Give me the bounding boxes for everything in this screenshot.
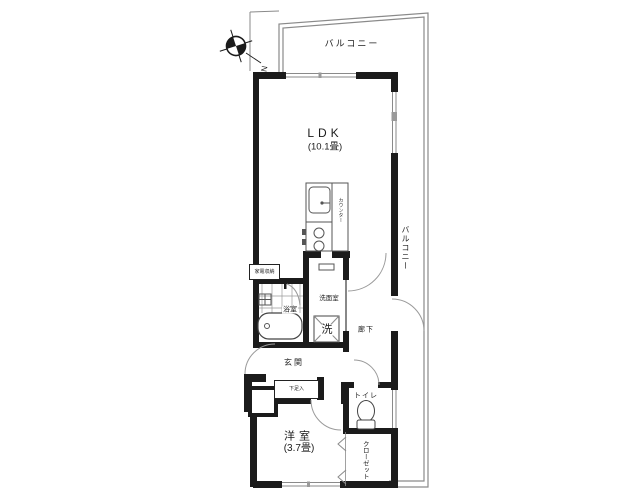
entrance-door-arc [245,344,275,374]
label-toilet: トイレ [354,393,378,400]
pillar-box [250,388,276,415]
label-balcony-right: バルコニー [401,226,409,271]
floor-plan-drawing: N [0,0,640,497]
toilet-door-arc [354,360,379,385]
label-western-room: 洋室 [284,432,314,443]
label-ldk-size: (10.1畳) [308,142,342,152]
closet-door-marks [338,432,346,486]
label-appliance-storage: 家電収納 [249,264,280,280]
label-closet: クローゼット [361,441,368,480]
label-balcony-top: バルコニー [325,40,380,49]
toilet-bowl [358,401,375,422]
label-shoe-cabinet: 下足入 [274,380,319,399]
washroom-door-panel [319,264,334,270]
label-ldk: LDK [307,127,342,139]
bath-door-arc [287,284,300,305]
label-western-room-size: (3.7畳) [284,444,315,454]
stove-burner [314,241,324,251]
compass-icon: N [215,25,269,73]
balcony-door-arc [392,299,424,331]
stove-burner [314,228,324,238]
bedroom-door-arc [311,400,341,430]
label-washroom: 洗面室 [319,296,339,303]
label-entrance: 玄関 [284,359,304,367]
label-counter: カウンター [338,198,343,223]
floor-plan: N バルコニー バルコニー LDK (10.1畳) カウンター 家電収納 浴室 … [0,0,640,497]
label-washing-machine: 洗 [321,325,334,336]
toilet-fixture [357,401,375,430]
compass-north-label: N [259,65,269,72]
label-hallway: 廊下 [358,327,374,334]
ldk-hallway-door-arc [348,253,386,291]
label-bathroom: 浴室 [282,307,298,314]
toilet-tank [357,420,375,429]
kitchen-sink [309,187,330,213]
